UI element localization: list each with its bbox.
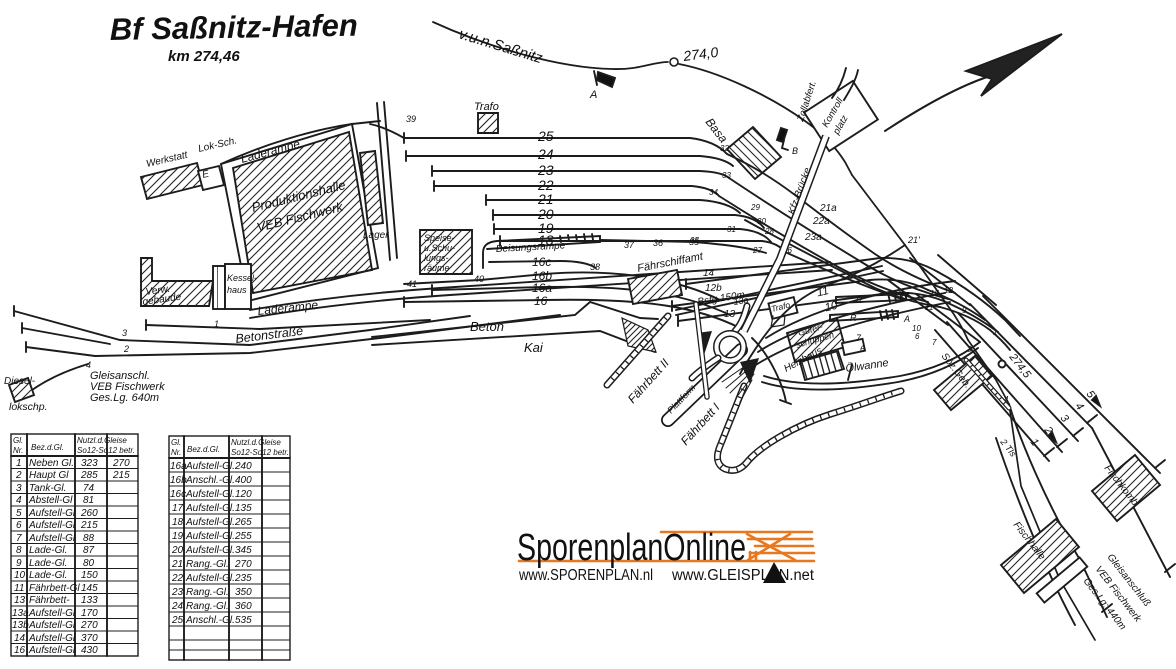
svg-text:räume: räume <box>424 263 450 273</box>
svg-text:Fährbett II: Fährbett II <box>625 356 672 407</box>
svg-text:120: 120 <box>235 489 252 500</box>
svg-text:21: 21 <box>171 559 183 570</box>
svg-text:6: 6 <box>16 520 22 531</box>
svg-text:19: 19 <box>172 531 184 542</box>
svg-text:9: 9 <box>16 558 22 569</box>
svg-text:28: 28 <box>764 227 774 236</box>
svg-text:Aufstell-Gl.: Aufstell-Gl. <box>185 573 235 584</box>
svg-text:4: 4 <box>86 360 91 370</box>
svg-text:Tank-Gl.: Tank-Gl. <box>29 483 66 494</box>
svg-text:Laderampe: Laderampe <box>257 298 319 318</box>
svg-text:Haupt Gl: Haupt Gl <box>29 470 69 481</box>
svg-text:Rang.-Gl.: Rang.-Gl. <box>186 559 229 570</box>
svg-text:lungs-: lungs- <box>424 253 449 263</box>
svg-text:34: 34 <box>709 188 718 197</box>
svg-text:Aufstell-Gl.: Aufstell-Gl. <box>185 503 235 514</box>
svg-text:Rang.-Gl.: Rang.-Gl. <box>186 601 229 612</box>
svg-text:22a: 22a <box>812 216 830 227</box>
svg-text:Aufstell-Gl.: Aufstell-Gl. <box>185 489 235 500</box>
svg-text:350: 350 <box>235 587 252 598</box>
svg-text:215: 215 <box>112 470 130 481</box>
svg-text:3: 3 <box>16 483 22 494</box>
svg-text:81: 81 <box>83 495 94 506</box>
svg-text:16: 16 <box>534 294 548 308</box>
svg-text:16c: 16c <box>170 489 186 500</box>
svg-text:14: 14 <box>703 268 715 279</box>
svg-text:Bez.d.Gl.: Bez.d.Gl. <box>31 443 64 452</box>
svg-text:360: 360 <box>235 601 252 612</box>
svg-text:80: 80 <box>83 558 95 569</box>
svg-text:270: 270 <box>80 620 98 631</box>
svg-text:Trafo: Trafo <box>474 101 499 113</box>
svg-text:32: 32 <box>720 144 729 153</box>
svg-text:Neben Gl.: Neben Gl. <box>29 458 74 469</box>
svg-text:3: 3 <box>122 328 127 338</box>
svg-text:7: 7 <box>16 533 22 544</box>
svg-text:7: 7 <box>932 338 937 347</box>
svg-text:370: 370 <box>81 633 98 644</box>
svg-text:SporenplanOnline: SporenplanOnline <box>517 527 746 569</box>
svg-text:430: 430 <box>81 645 98 656</box>
svg-text:6: 6 <box>860 344 865 354</box>
svg-text:11: 11 <box>925 303 933 312</box>
svg-text:Beton: Beton <box>470 319 504 334</box>
svg-text:Lok-Sch.: Lok-Sch. <box>197 135 238 155</box>
svg-text:17: 17 <box>900 291 909 300</box>
svg-text:Gl.: Gl. <box>13 436 23 445</box>
svg-text:30: 30 <box>757 217 766 226</box>
svg-text:36: 36 <box>653 238 663 248</box>
svg-text:535: 535 <box>235 615 252 626</box>
svg-text:4: 4 <box>16 495 22 506</box>
svg-text:Fährbett-Gl: Fährbett-Gl <box>29 583 80 594</box>
svg-text:Nr.: Nr. <box>13 446 23 455</box>
svg-text:A: A <box>903 314 910 324</box>
svg-text:87: 87 <box>83 545 95 556</box>
svg-text:Bf Saßnitz-Hafen: Bf Saßnitz-Hafen <box>110 8 359 47</box>
svg-text:13a: 13a <box>12 608 29 619</box>
svg-text:274,5: 274,5 <box>1006 351 1034 382</box>
svg-text:Nutzl.d.Gleise: Nutzl.d.Gleise <box>231 438 281 447</box>
svg-text:km 274,46: km 274,46 <box>168 48 240 65</box>
svg-text:So12-So12 betr.: So12-So12 betr. <box>77 446 135 455</box>
svg-text:Aufstell-Gl.: Aufstell-Gl. <box>185 531 235 542</box>
svg-text:Kessel-: Kessel- <box>227 273 257 283</box>
svg-text:v.u.n.Saßnitz: v.u.n.Saßnitz <box>457 26 545 68</box>
svg-text:Aufstell-Gl: Aufstell-Gl <box>28 633 76 644</box>
svg-text:2 Tls: 2 Tls <box>998 436 1019 459</box>
svg-text:12b: 12b <box>705 283 722 294</box>
svg-text:33: 33 <box>722 171 731 180</box>
svg-text:Aufstell-Gl: Aufstell-Gl <box>28 645 76 656</box>
svg-text:11: 11 <box>14 583 24 594</box>
svg-text:18: 18 <box>172 517 184 528</box>
svg-text:Aufstell-Gl: Aufstell-Gl <box>28 620 76 631</box>
svg-text:Kai: Kai <box>524 340 544 355</box>
svg-text:16b: 16b <box>170 475 187 486</box>
svg-text:16: 16 <box>14 645 26 656</box>
svg-text:135: 135 <box>235 503 252 514</box>
svg-text:Lade-Gl.: Lade-Gl. <box>29 545 67 556</box>
svg-text:25: 25 <box>537 128 554 144</box>
svg-text:270: 270 <box>234 559 252 570</box>
svg-text:www.SPORENPLAN.nl: www.SPORENPLAN.nl <box>518 567 653 584</box>
svg-text:29: 29 <box>750 203 760 212</box>
svg-text:15: 15 <box>930 289 939 298</box>
svg-text:74: 74 <box>83 483 95 494</box>
svg-text:Beisungsrampe: Beisungsrampe <box>496 240 566 255</box>
svg-text:Aufstell-Gl.: Aufstell-Gl. <box>185 517 235 528</box>
svg-text:133: 133 <box>81 595 98 606</box>
svg-text:3: 3 <box>1058 412 1072 425</box>
svg-text:Speise-: Speise- <box>424 233 455 243</box>
svg-text:u.Schu-: u.Schu- <box>424 243 455 253</box>
svg-text:255: 255 <box>234 531 252 542</box>
svg-text:20: 20 <box>171 545 184 556</box>
svg-text:170: 170 <box>81 608 98 619</box>
svg-text:22: 22 <box>171 573 184 584</box>
svg-text:21': 21' <box>907 235 920 245</box>
svg-text:23: 23 <box>537 162 554 178</box>
svg-text:14: 14 <box>14 633 26 644</box>
svg-text:1: 1 <box>214 319 219 329</box>
svg-text:24: 24 <box>537 146 554 162</box>
svg-text:37: 37 <box>624 240 635 250</box>
svg-text:Ges.Lg. 640m: Ges.Lg. 640m <box>90 392 159 404</box>
svg-text:Aufstell-Gl.: Aufstell-Gl. <box>185 461 235 472</box>
svg-text:265: 265 <box>234 517 252 528</box>
svg-text:270: 270 <box>112 458 130 469</box>
svg-text:215: 215 <box>80 520 98 531</box>
svg-text:23: 23 <box>171 587 184 598</box>
svg-text:5: 5 <box>16 508 22 519</box>
svg-text:Nutzl.d.Gleise: Nutzl.d.Gleise <box>77 436 127 445</box>
svg-text:Anschl.-Gl.: Anschl.-Gl. <box>185 615 235 626</box>
svg-text:2: 2 <box>15 470 22 481</box>
svg-text:240: 240 <box>234 461 252 472</box>
svg-text:www.GLEISPLAN.net: www.GLEISPLAN.net <box>671 567 815 584</box>
svg-text:Nr.: Nr. <box>171 448 181 457</box>
svg-text:24: 24 <box>171 601 184 612</box>
svg-text:323: 323 <box>81 458 98 469</box>
svg-text:345: 345 <box>235 545 252 556</box>
svg-text:35: 35 <box>690 236 699 245</box>
svg-text:Fährbett-: Fährbett- <box>29 595 70 606</box>
svg-text:145: 145 <box>81 583 98 594</box>
svg-text:13b: 13b <box>12 620 29 631</box>
svg-text:8: 8 <box>16 545 22 556</box>
svg-text:Aufstell-Gl: Aufstell-Gl <box>28 608 76 619</box>
svg-text:260: 260 <box>80 508 98 519</box>
svg-text:235: 235 <box>234 573 252 584</box>
svg-text:Aufstell-Gl: Aufstell-Gl <box>28 533 76 544</box>
svg-text:23a: 23a <box>804 232 822 243</box>
svg-text:1: 1 <box>16 458 22 469</box>
svg-text:Anschl.-Gl.: Anschl.-Gl. <box>185 475 235 486</box>
svg-text:Aufstell-Gl: Aufstell-Gl <box>28 520 76 531</box>
svg-text:16a: 16a <box>532 281 552 295</box>
svg-text:Lade-Gl.: Lade-Gl. <box>29 558 67 569</box>
svg-text:285: 285 <box>80 470 98 481</box>
svg-text:13: 13 <box>14 595 26 606</box>
svg-text:16c: 16c <box>532 255 551 269</box>
svg-text:274,0: 274,0 <box>681 44 719 64</box>
svg-text:2: 2 <box>123 344 129 354</box>
svg-text:88: 88 <box>83 533 95 544</box>
svg-text:16a: 16a <box>170 461 187 472</box>
svg-text:25: 25 <box>171 615 184 626</box>
svg-text:9: 9 <box>962 306 967 315</box>
svg-text:10: 10 <box>14 570 26 581</box>
svg-text:lokschp.: lokschp. <box>9 401 48 413</box>
svg-text:A: A <box>589 89 597 101</box>
svg-text:21: 21 <box>537 191 554 207</box>
svg-text:Lade-Gl.: Lade-Gl. <box>29 570 67 581</box>
svg-text:Rang.-Gl.: Rang.-Gl. <box>186 587 229 598</box>
svg-text:Aufstell-Gl.: Aufstell-Gl. <box>185 545 235 556</box>
svg-text:Aufstell-Gl: Aufstell-Gl <box>28 508 76 519</box>
svg-text:Gl.: Gl. <box>171 438 181 447</box>
svg-text:31: 31 <box>727 225 736 234</box>
svg-text:6: 6 <box>915 332 920 341</box>
svg-text:39: 39 <box>406 114 416 124</box>
svg-text:12: 12 <box>944 286 953 295</box>
svg-text:17: 17 <box>172 503 184 514</box>
svg-text:Lager: Lager <box>363 230 389 241</box>
svg-text:B: B <box>792 146 798 156</box>
svg-text:21a: 21a <box>819 203 837 214</box>
svg-text:Bez.d.Gl.: Bez.d.Gl. <box>187 445 220 454</box>
svg-text:haus: haus <box>227 285 247 295</box>
svg-text:150: 150 <box>81 570 98 581</box>
svg-text:Diesel-: Diesel- <box>4 376 36 387</box>
svg-text:27: 27 <box>752 246 762 255</box>
svg-text:13: 13 <box>724 309 736 320</box>
svg-text:400: 400 <box>235 475 252 486</box>
svg-text:Abstell-Gl: Abstell-Gl <box>28 495 73 506</box>
svg-text:So12-So12 betr.: So12-So12 betr. <box>231 448 289 457</box>
